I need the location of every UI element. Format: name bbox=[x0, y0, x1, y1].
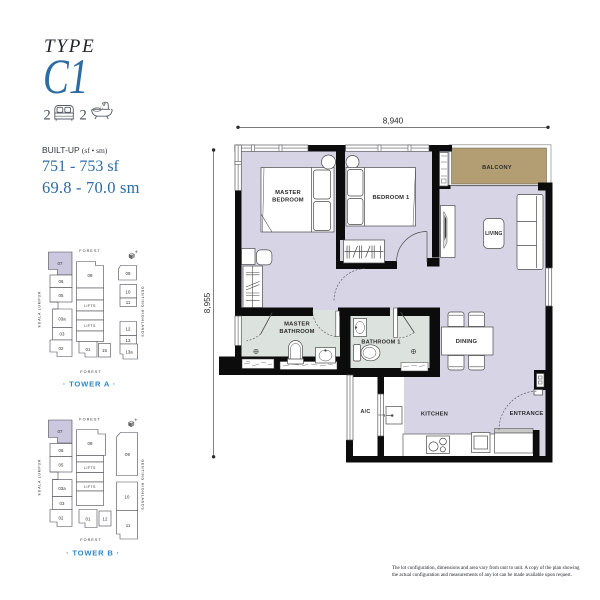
svg-text:BATHROOM 1: BATHROOM 1 bbox=[361, 340, 400, 346]
svg-text:BEDROOM 1: BEDROOM 1 bbox=[373, 195, 410, 201]
svg-text:DINING: DINING bbox=[456, 339, 478, 345]
svg-text:A/C: A/C bbox=[361, 409, 371, 415]
svg-text:MASTER: MASTER bbox=[275, 190, 301, 196]
svg-text:MASTER: MASTER bbox=[284, 322, 310, 328]
svg-text:BEDROOM: BEDROOM bbox=[272, 198, 304, 204]
svg-text:8,940: 8,940 bbox=[383, 117, 404, 126]
svg-text:ENTRANCE: ENTRANCE bbox=[510, 411, 544, 417]
svg-text:LIVING: LIVING bbox=[485, 231, 502, 237]
svg-text:8,955: 8,955 bbox=[203, 292, 212, 313]
svg-text:BATHROOM: BATHROOM bbox=[279, 329, 314, 335]
svg-text:KITCHEN: KITCHEN bbox=[421, 412, 448, 418]
svg-text:BALCONY: BALCONY bbox=[482, 165, 512, 171]
